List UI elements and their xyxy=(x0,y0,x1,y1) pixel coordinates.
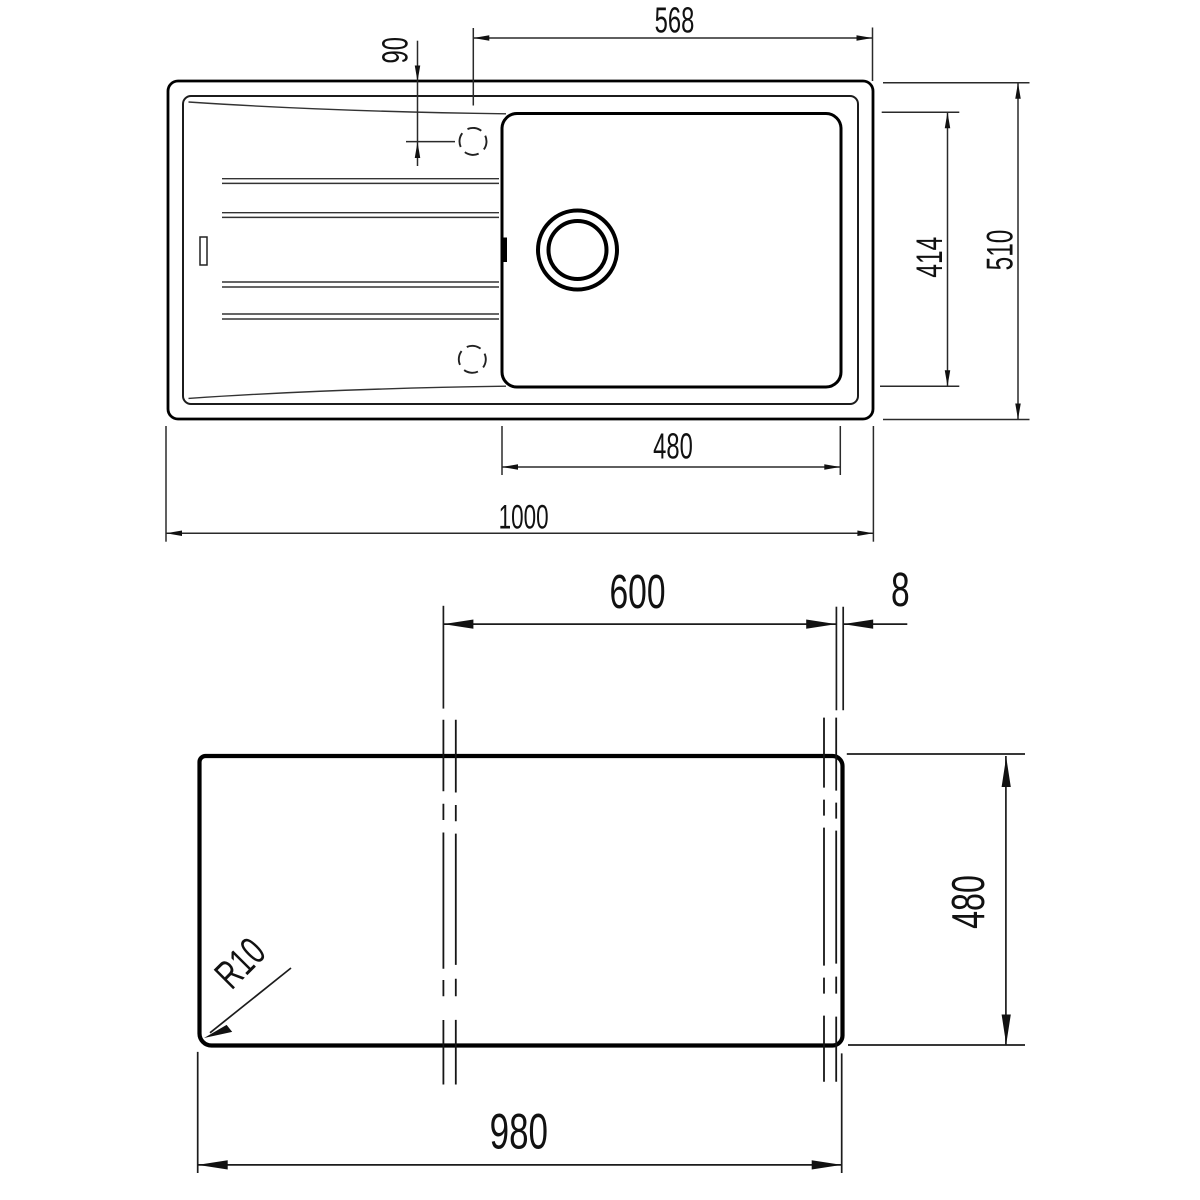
svg-text:90: 90 xyxy=(376,37,416,63)
svg-text:R10: R10 xyxy=(207,930,274,997)
svg-text:600: 600 xyxy=(609,564,665,618)
svg-text:568: 568 xyxy=(655,1,695,41)
svg-text:414: 414 xyxy=(909,237,950,278)
svg-text:510: 510 xyxy=(979,230,1020,271)
svg-text:480: 480 xyxy=(943,875,994,929)
svg-text:8: 8 xyxy=(891,562,910,616)
svg-text:1000: 1000 xyxy=(499,499,549,537)
svg-text:980: 980 xyxy=(490,1104,548,1160)
svg-text:480: 480 xyxy=(653,427,693,467)
